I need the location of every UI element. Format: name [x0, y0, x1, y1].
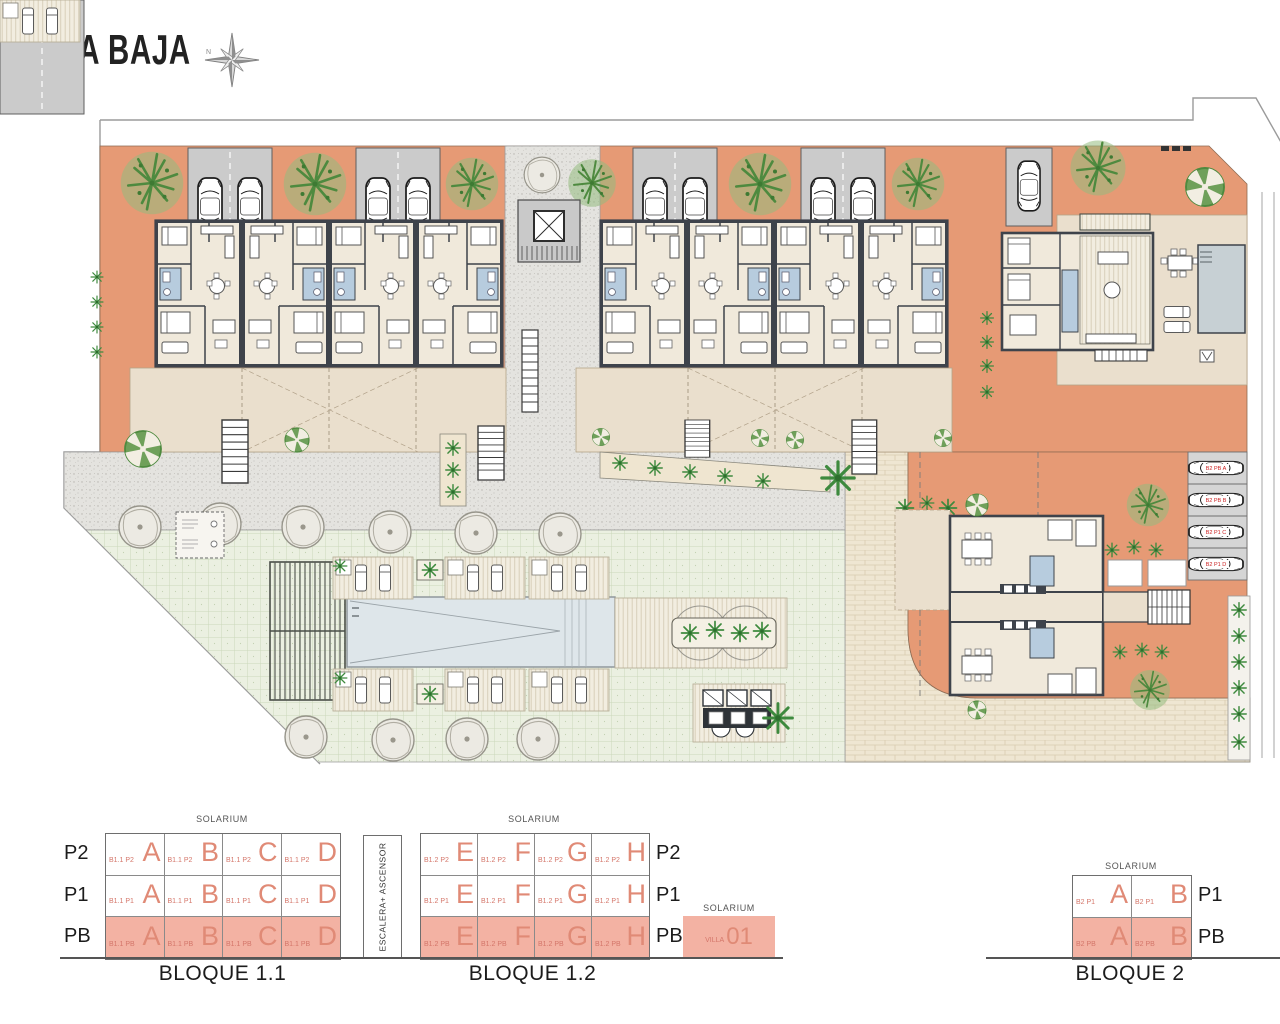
unit-cell-B1.1-P1-B: B1.1 P1B	[165, 876, 224, 918]
bloque-1-1-name: BLOQUE 1.1	[140, 962, 305, 986]
unit-cell-B1.2-P2-H: B1.2 P2H	[592, 834, 649, 876]
stair-elevator-label: ESCALERA+ ASCENSOR	[378, 842, 388, 951]
unit-cell-B1.1-P2-D: B1.1 P2D	[282, 834, 341, 876]
unit-cell-B2-P1-A: B2 P1A	[1073, 876, 1132, 918]
pool-sign	[176, 512, 224, 558]
bloque-1-2-table: B1.2 P2EB1.2 P2FB1.2 P2GB1.2 P2HB1.2 P1E…	[420, 833, 650, 960]
stair-elevator-column: ESCALERA+ ASCENSOR	[363, 835, 402, 958]
ground-line-right	[986, 957, 1280, 959]
unit-cell-B1.1-P2-C: B1.1 P2C	[223, 834, 282, 876]
bloque-1-2-building	[600, 220, 948, 367]
unit-cell-B1.1-PB-D: B1.1 PBD	[282, 917, 341, 959]
bloque-1-1-table: B1.1 P2AB1.1 P2BB1.1 P2CB1.1 P2DB1.1 P1A…	[105, 833, 341, 960]
solarium-label-b11: SOLARIUM	[105, 814, 339, 824]
unit-cell-B2-PB-B: B2 PBB	[1132, 918, 1191, 960]
roof-vents	[1161, 146, 1191, 151]
lawn-palm	[764, 704, 793, 733]
floor-labels-mid: P2P1PB	[656, 833, 683, 958]
unit-cell-B1.2-P1-F: B1.2 P1F	[478, 876, 535, 918]
unit-cell-B1.2-PB-E: B1.2 PBE	[421, 917, 478, 959]
unit-cell-B1.2-PB-H: B1.2 PBH	[592, 917, 649, 959]
floor-labels-left: P2P1PB	[64, 833, 91, 958]
unit-cell-B1.1-PB-A: B1.1 PBA	[106, 917, 165, 959]
unit-cell-B1.2-PB-G: B1.2 PBG	[535, 917, 592, 959]
floor-label-P1: P1	[656, 875, 683, 917]
floor-label-PB: PB	[64, 916, 91, 958]
solarium-label-b12: SOLARIUM	[420, 814, 648, 824]
floor-label-P2: P2	[656, 833, 683, 875]
unit-cell-B2-PB-A: B2 PBA	[1073, 918, 1132, 960]
unit-cell-B1.1-P2-A: B1.1 P2A	[106, 834, 165, 876]
unit-cell-B1.2-P1-G: B1.2 P1G	[535, 876, 592, 918]
unit-cell-B1.1-PB-C: B1.1 PBC	[223, 917, 282, 959]
unit-cell-B1.2-P2-F: B1.2 P2F	[478, 834, 535, 876]
villa-number: 01	[726, 923, 753, 951]
parking-label-3: B2 P1 C	[1206, 530, 1227, 536]
ground-line-left	[60, 957, 783, 959]
unit-cell-B1.1-P2-B: B1.1 P2B	[165, 834, 224, 876]
floor-labels-b2: P1PB	[1198, 875, 1225, 958]
villa-cell: VILLA 01	[683, 916, 775, 957]
parking-label-4: B2 P1 D	[1206, 562, 1227, 568]
solarium-label-b2: SOLARIUM	[1072, 861, 1190, 871]
unit-cell-B1.1-P1-D: B1.1 P1D	[282, 876, 341, 918]
unit-cell-B1.2-P2-G: B1.2 P2G	[535, 834, 592, 876]
unit-cell-B1.2-P1-H: B1.2 P1H	[592, 876, 649, 918]
unit-cell-B1.1-PB-B: B1.1 PBB	[165, 917, 224, 959]
palm-strip	[1228, 596, 1250, 760]
bloque-2-name: BLOQUE 2	[1060, 962, 1200, 986]
unit-cell-B2-P1-B: B2 P1B	[1132, 876, 1191, 918]
floor-label-P1: P1	[1198, 875, 1225, 917]
floor-label-P2: P2	[64, 833, 91, 875]
unit-cell-B1.2-PB-F: B1.2 PBF	[478, 917, 535, 959]
villa-code: VILLA	[705, 937, 724, 944]
unit-cell-B1.2-P1-E: B1.2 P1E	[421, 876, 478, 918]
solarium-label-villa: SOLARIUM	[683, 903, 775, 913]
unit-cell-B1.1-P1-C: B1.1 P1C	[223, 876, 282, 918]
floor-label-PB: PB	[656, 916, 683, 958]
parking-label-2: B2 PB B	[1206, 498, 1227, 504]
bloque-1-1-building	[155, 220, 503, 367]
unit-cell-B1.2-P2-E: B1.2 P2E	[421, 834, 478, 876]
bloque-2-table: B2 P1AB2 P1BB2 PBAB2 PBB	[1072, 875, 1192, 960]
bloque2-parking: B2 PB A B2 PB B B2 P1 C B2 P1 D	[1188, 452, 1247, 580]
floor-label-PB: PB	[1198, 917, 1225, 959]
bloque-1-2-name: BLOQUE 1.2	[450, 962, 615, 986]
floor-plan-page: PLANTA BAJA N	[0, 0, 1280, 1024]
unit-cell-B1.1-P1-A: B1.1 P1A	[106, 876, 165, 918]
parking-label-1: B2 PB A	[1206, 466, 1227, 472]
swimming-pool	[347, 597, 615, 667]
floor-label-P1: P1	[64, 875, 91, 917]
